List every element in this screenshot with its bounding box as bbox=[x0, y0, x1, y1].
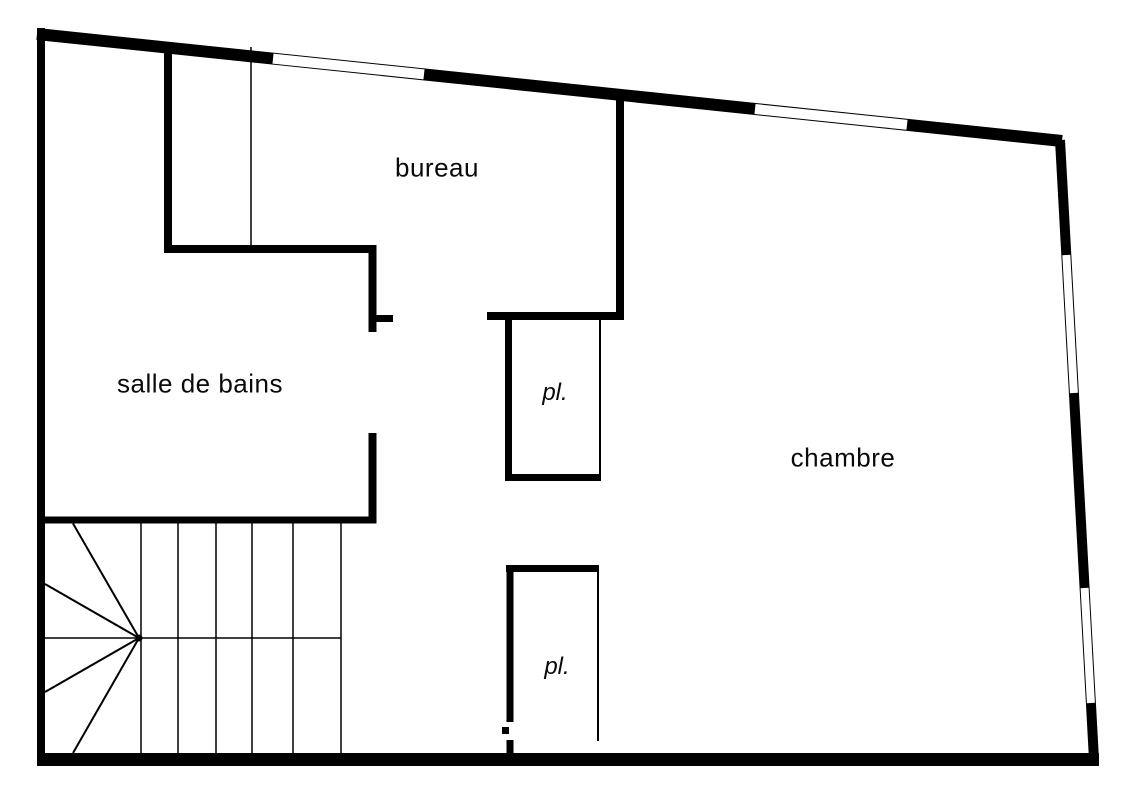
room-label-placard-haut: pl. bbox=[542, 379, 567, 407]
stair-winder-line bbox=[73, 638, 139, 753]
stair-winder-line bbox=[45, 638, 139, 692]
floor-plan-page: bureau salle de bains chambre pl. pl. bbox=[0, 0, 1131, 800]
room-label-chambre: chambre bbox=[791, 443, 896, 474]
room-label-placard-bas: pl. bbox=[544, 653, 569, 681]
stair-center-dot bbox=[136, 635, 143, 642]
window-right-upper bbox=[1066, 255, 1074, 393]
room-label-salle-de-bains: salle de bains bbox=[117, 369, 283, 400]
stair-winder-line bbox=[45, 584, 139, 638]
exterior-wall-top bbox=[37, 34, 1062, 141]
stair-winder-line bbox=[73, 524, 139, 639]
room-label-bureau: bureau bbox=[395, 153, 479, 184]
